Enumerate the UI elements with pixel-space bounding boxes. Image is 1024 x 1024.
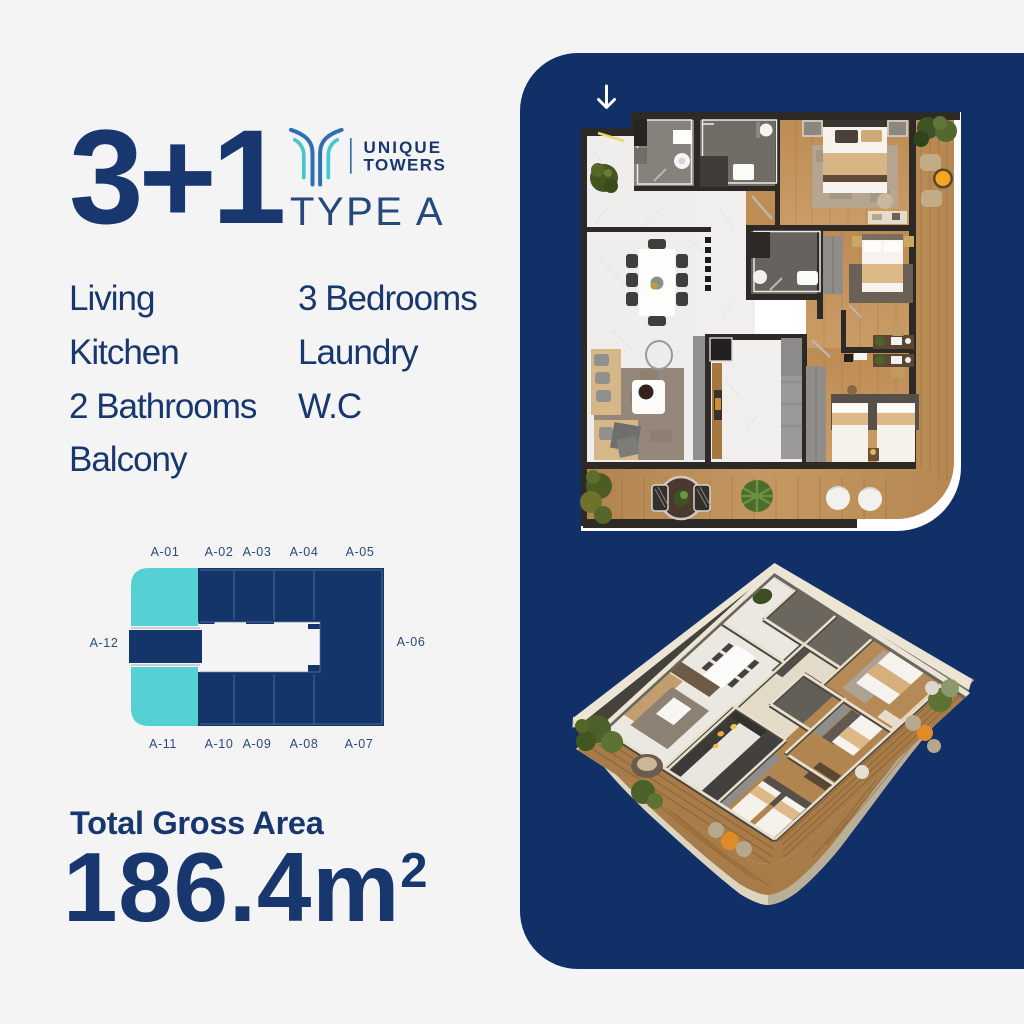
svg-text:A-03: A-03: [243, 545, 272, 559]
svg-text:A-08: A-08: [290, 737, 319, 751]
svg-text:A-07: A-07: [345, 737, 374, 751]
svg-text:A-10: A-10: [205, 737, 234, 751]
svg-text:A-05: A-05: [346, 545, 375, 559]
svg-text:A-09: A-09: [243, 737, 272, 751]
svg-text:TOWERS: TOWERS: [364, 155, 447, 174]
svg-text:A-04: A-04: [290, 545, 319, 559]
svg-text:A-02: A-02: [205, 545, 234, 559]
svg-text:A-11: A-11: [149, 737, 177, 751]
svg-text:A-06: A-06: [397, 635, 426, 649]
svg-text:A-01: A-01: [151, 545, 180, 559]
svg-text:A-12: A-12: [90, 636, 119, 650]
svg-text:UNIQUE: UNIQUE: [364, 138, 443, 157]
